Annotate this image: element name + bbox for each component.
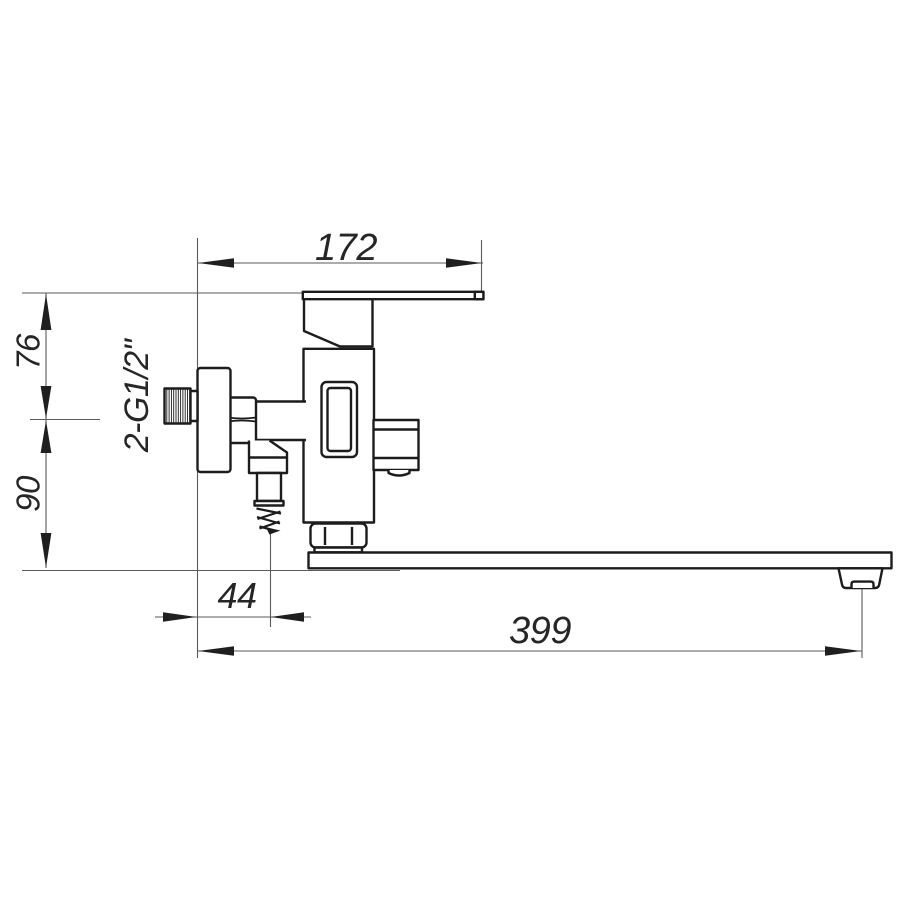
- dimension-arrowheads: [41, 258, 861, 656]
- faucet-lever: [303, 292, 484, 299]
- connector-mid-block: [257, 473, 281, 501]
- arrow-76-down: [41, 386, 52, 419]
- arrow-76-up: [41, 294, 52, 330]
- side-outlet: [374, 420, 419, 476]
- dimension-label-bottom-offset: 44: [217, 578, 256, 614]
- connector-step: [255, 501, 284, 506]
- spout-bar: [309, 553, 892, 569]
- thread-shoulder: [191, 391, 198, 421]
- thread-outline: [165, 389, 191, 424]
- connector-coil: [257, 509, 282, 532]
- arrow-44-right: [271, 612, 305, 622]
- dimension-label-thread-spec: 2-G1/2": [120, 340, 154, 453]
- lever-bar: [303, 292, 484, 299]
- dimension-label-top-width: 172: [315, 229, 377, 267]
- arrow-44-left: [163, 612, 197, 622]
- wall-flange: [198, 368, 231, 472]
- dimension-label-lower-height: 90: [12, 476, 45, 512]
- threaded-tail: [165, 389, 198, 424]
- diverter-knob: [322, 382, 358, 457]
- technical-drawing-canvas: 172 76 90 2-G1/2" 44 399: [0, 0, 900, 900]
- arrow-399-left: [198, 646, 234, 656]
- shower-hose-connector: [249, 441, 287, 535]
- arrow-172-left: [198, 258, 234, 268]
- connector-coil-tip: [266, 528, 281, 535]
- dimension-label-spout-length: 399: [509, 612, 571, 650]
- arrow-90-up: [41, 421, 52, 454]
- arrow-172-right: [446, 258, 482, 268]
- spout-mounting-nut: [311, 524, 367, 553]
- arrow-399-right: [825, 646, 861, 656]
- outlet-block: [374, 420, 419, 470]
- spout-aerator: [852, 582, 874, 588]
- dimension-label-upper-height: 76: [12, 334, 45, 370]
- outlet-cap: [389, 470, 410, 476]
- inlet-arm: [256, 402, 307, 441]
- handle-neck: [304, 293, 373, 347]
- lever-tip-cap: [475, 292, 484, 299]
- mounting-nut-outline: [311, 524, 367, 548]
- diverter-inner: [328, 388, 352, 451]
- arrow-90-down: [41, 533, 52, 568]
- hex-connection-nut: [228, 398, 256, 444]
- faucet-outline: [165, 292, 892, 588]
